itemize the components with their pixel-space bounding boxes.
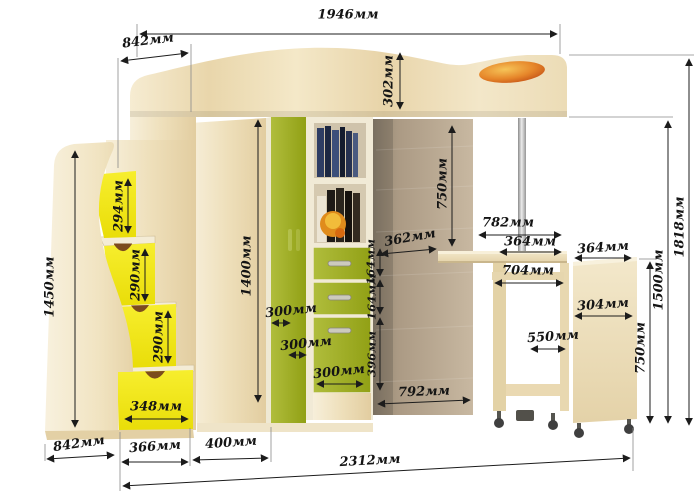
stairs-unit: [45, 117, 196, 440]
bed-board: [130, 48, 567, 117]
back-panel: [373, 119, 473, 415]
dim-total-height: 1818мм: [674, 197, 687, 258]
dim-desk-height: 750мм: [635, 322, 648, 374]
plinth-wardrobe: [197, 423, 373, 432]
dim-step3-height: 290мм: [153, 311, 166, 363]
dim-stairs-height: 1450мм: [44, 257, 57, 318]
dim-underdesk-width: 792мм: [398, 385, 450, 400]
wardrobe-side-panel: [190, 117, 271, 429]
dim-wardrobe-height: 1400мм: [241, 236, 254, 297]
dim-cabinet-top-width: 364мм: [577, 240, 630, 257]
dim-desk-opening-width: 704мм: [502, 265, 554, 278]
dim-desk-width: 782мм: [482, 217, 534, 230]
furniture-dimension-diagram: 1946мм 842мм 302мм 1450мм 294мм 290мм 29…: [0, 0, 700, 502]
dim-step2-height: 290мм: [130, 249, 143, 301]
dim-cabinet-width: 304мм: [577, 297, 630, 314]
dim-step1-height: 294мм: [113, 180, 126, 232]
dim-underbed-clearance: 750мм: [437, 158, 450, 210]
dim-wardrobe-section-width: 400мм: [205, 435, 258, 452]
dim-desk-section-width: 364мм: [504, 236, 556, 249]
dim-width-top: 1946мм: [318, 9, 379, 22]
desk-casters: [494, 410, 558, 430]
books-top: [317, 126, 358, 177]
books-middle: [317, 188, 360, 242]
dim-stairs-section-width: 366мм: [129, 439, 182, 456]
rolling-cabinet: [573, 257, 637, 438]
dim-headboard-height: 302мм: [383, 55, 396, 107]
wardrobe-door: [271, 117, 306, 425]
dim-bed-platform-height: 1500мм: [653, 250, 666, 311]
dim-shelf-door-height: 396мм: [366, 331, 378, 377]
dim-bottom-drawer-width: 348мм: [130, 401, 182, 414]
support-pole: [518, 118, 526, 252]
dim-desk-depth: 550мм: [527, 329, 580, 346]
dim-shelf-drawer2-height: 164мм: [366, 274, 378, 320]
dim-total-width: 2312мм: [339, 453, 401, 469]
